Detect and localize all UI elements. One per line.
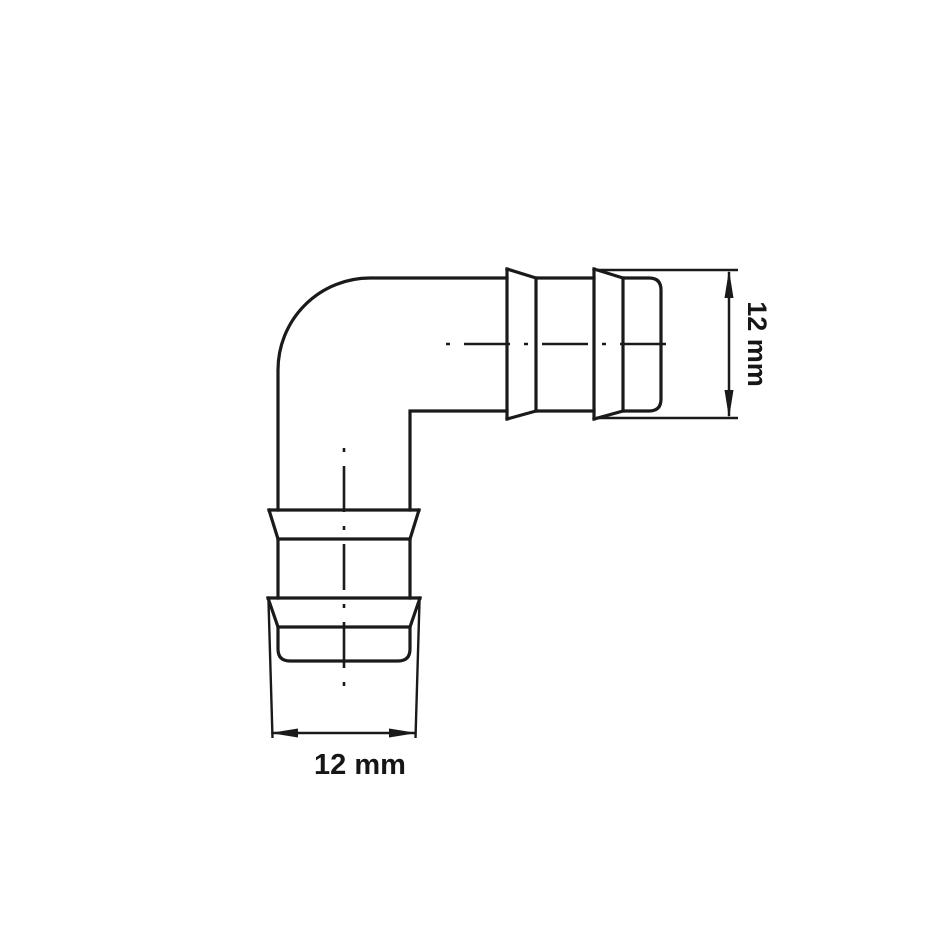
drawing-canvas: 12 mm 12 mm	[0, 0, 951, 951]
dimension-label-right: 12 mm	[742, 301, 772, 387]
dimension-extension-line-right	[416, 601, 420, 738]
right-arm-barb-2	[594, 269, 623, 419]
dimension-arrow-right	[389, 729, 417, 738]
dimension-arrow-down	[725, 390, 734, 418]
elbow-inner-contour	[410, 411, 507, 510]
elbow-barb-fitting-drawing: 12 mm 12 mm	[0, 0, 951, 951]
right-arm-barb-1	[507, 269, 536, 419]
dimension-arrow-left	[270, 729, 298, 738]
bottom-arm-barb-1	[269, 510, 419, 539]
dimension-arrow-up	[725, 270, 734, 298]
elbow-outer-contour	[278, 278, 507, 510]
dimension-extension-line-left	[269, 601, 273, 738]
part-outline	[268, 269, 661, 661]
dimension-label-bottom: 12 mm	[314, 749, 406, 781]
